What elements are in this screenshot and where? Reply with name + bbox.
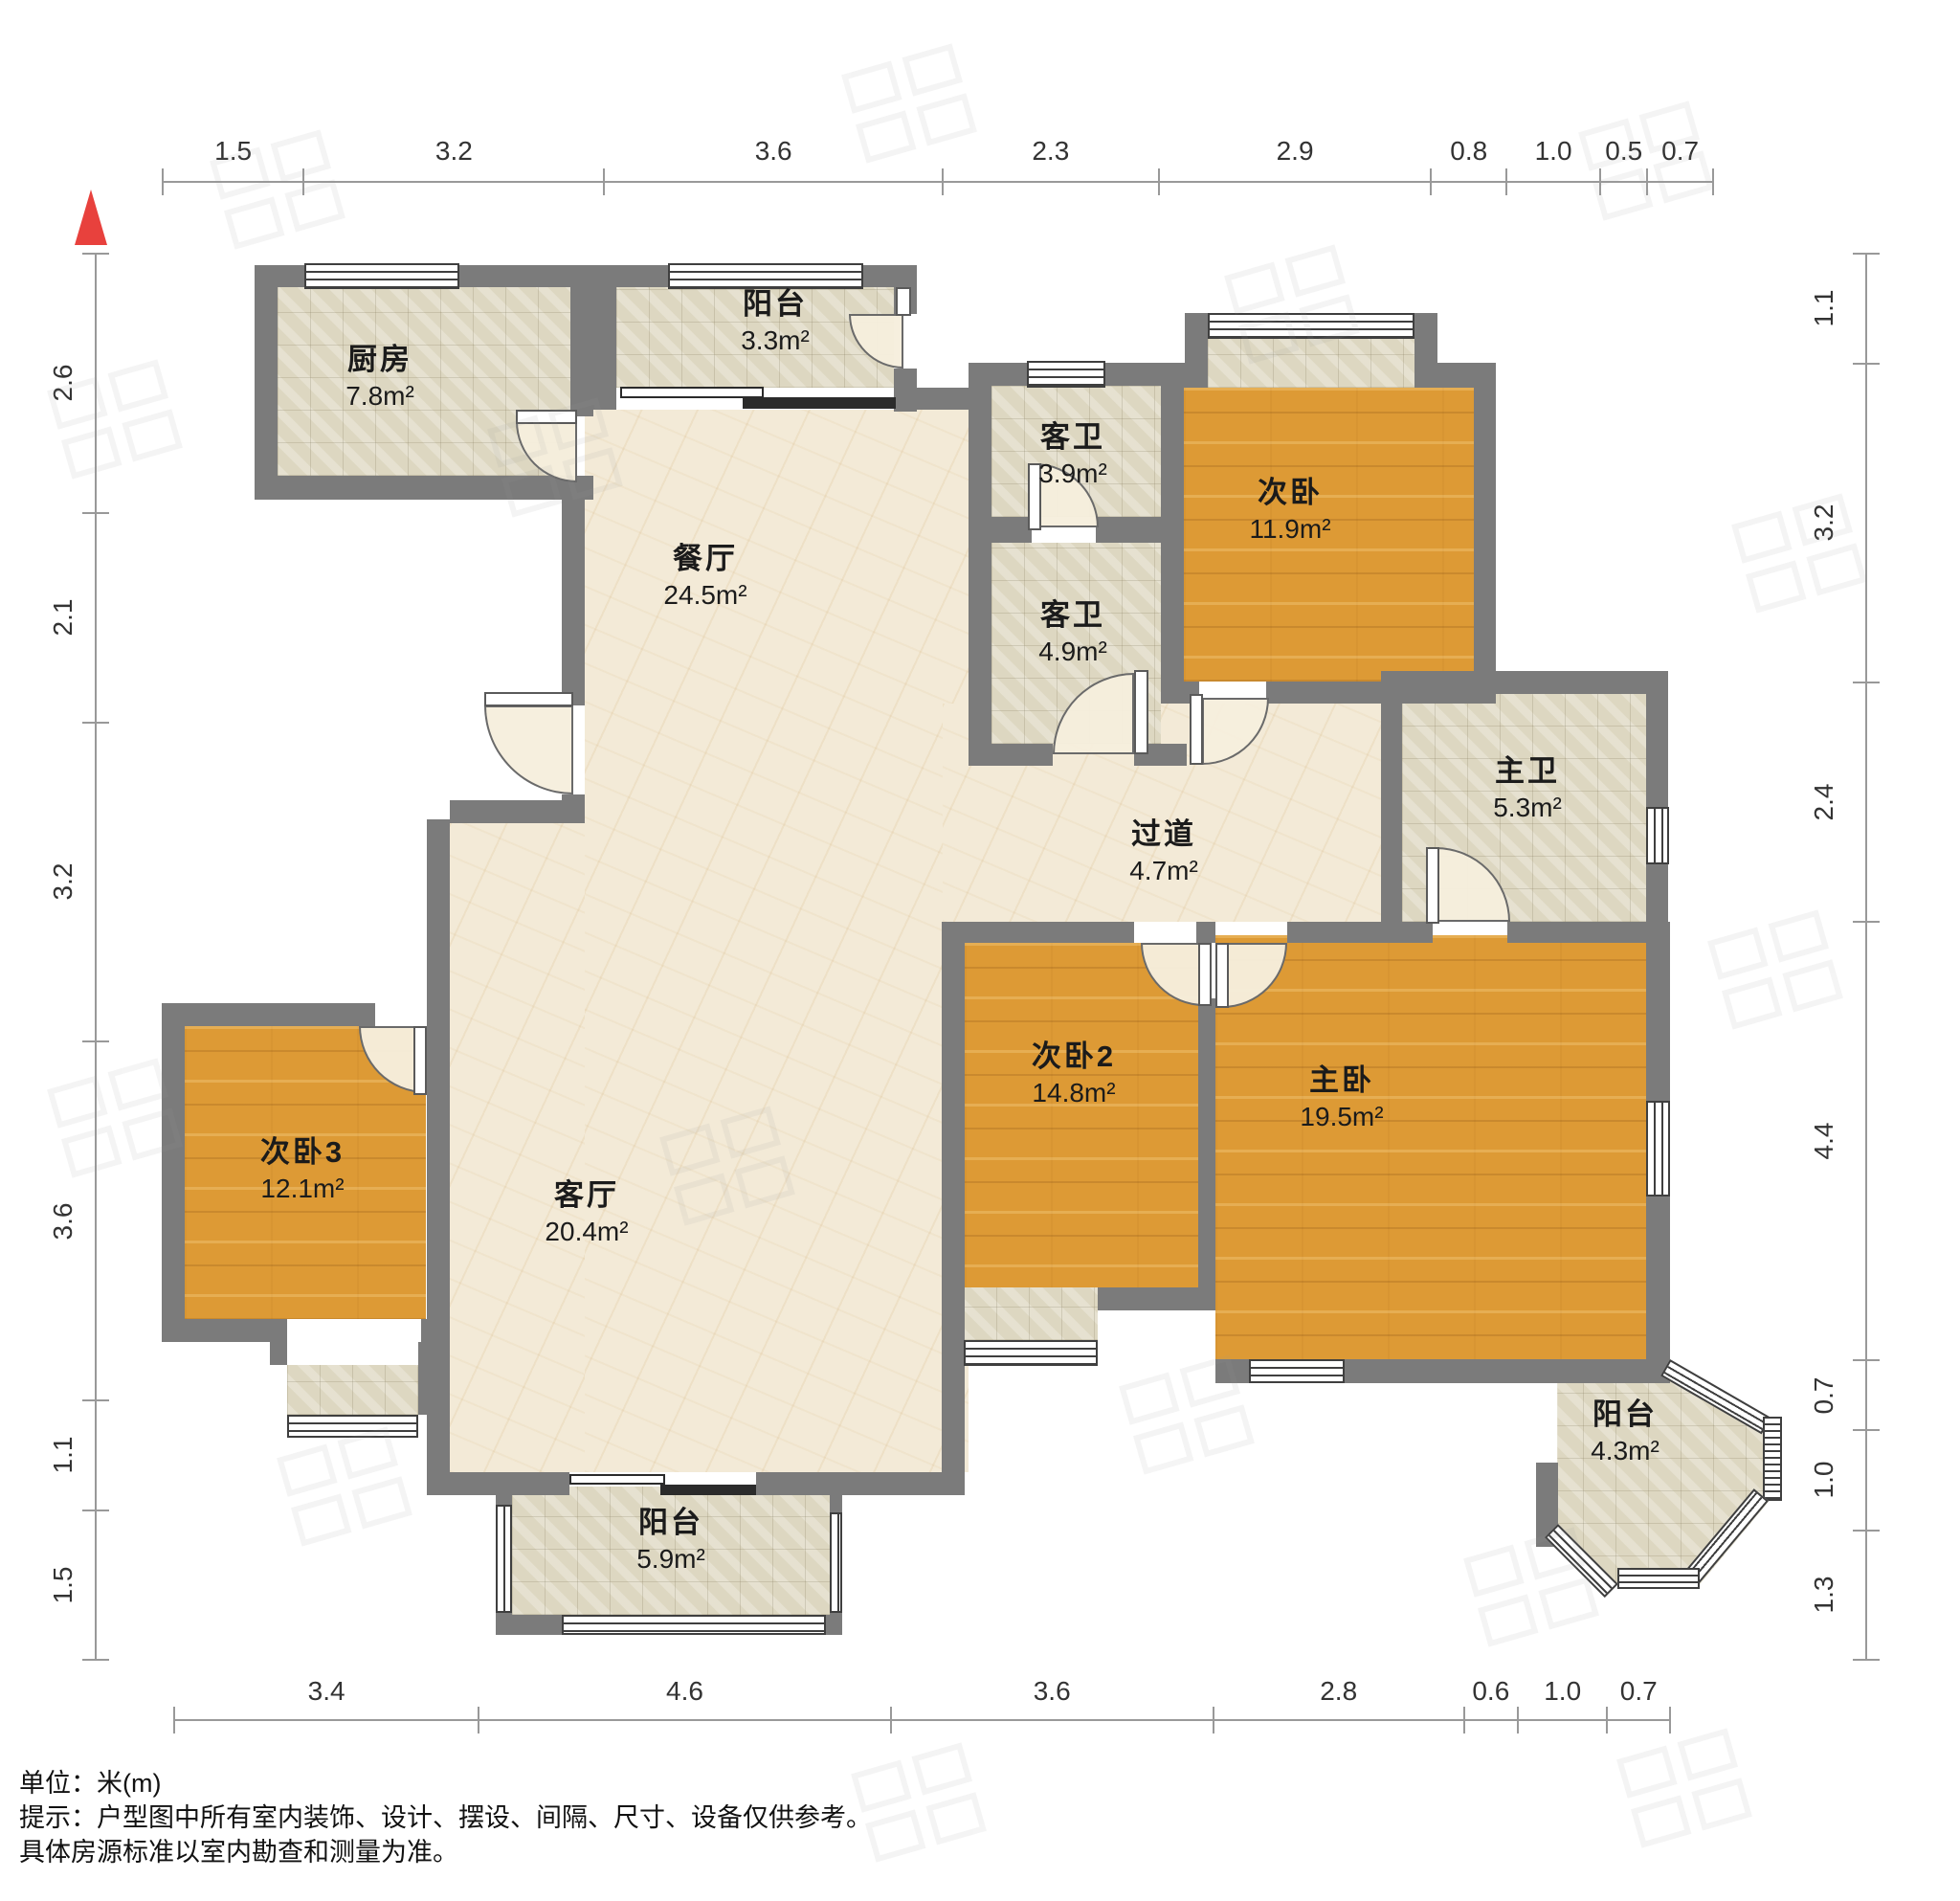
- window: [1763, 1417, 1782, 1501]
- wall: [1646, 671, 1668, 807]
- dim-label-right: 0.7: [1809, 1376, 1839, 1414]
- dim-line-left: [95, 254, 97, 1660]
- dim-tick: [942, 168, 944, 195]
- dim-tick: [1669, 1707, 1671, 1733]
- wall: [1345, 1359, 1589, 1383]
- north-triangle-icon: [75, 190, 107, 245]
- room-name-kitchen: 厨房: [345, 335, 414, 378]
- dim-label-bottom: 3.4: [308, 1676, 345, 1707]
- dim-label-left: 2.1: [48, 599, 78, 637]
- sliding-door: [660, 1485, 756, 1495]
- wall: [830, 1495, 842, 1512]
- wall: [421, 1319, 450, 1342]
- wall: [255, 476, 593, 500]
- room-floor: [450, 823, 585, 1472]
- dim-tick: [1853, 921, 1880, 923]
- wall: [496, 1615, 562, 1635]
- dim-label-top: 0.5: [1605, 136, 1642, 167]
- room-label-bedroom-second: 次卧11.9m²: [1249, 468, 1330, 545]
- dim-label-left: 3.6: [48, 1202, 78, 1240]
- dim-label-right: 4.4: [1809, 1123, 1839, 1160]
- door-leaf: [413, 1026, 427, 1095]
- room-area-guest-bath-1: 3.9m²: [1038, 458, 1107, 489]
- room-label-bedroom-2: 次卧214.8m²: [1032, 1032, 1116, 1108]
- room-label-master-bath: 主卫5.3m²: [1493, 747, 1562, 823]
- dim-tick: [1853, 363, 1880, 365]
- room-label-bedroom-3: 次卧312.1m²: [260, 1128, 345, 1204]
- dim-tick: [1712, 168, 1714, 195]
- room-area-bedroom-3: 12.1m²: [260, 1174, 345, 1204]
- dim-line-bottom: [174, 1719, 1670, 1721]
- room-area-living: 20.4m²: [545, 1217, 628, 1247]
- tip-line-2: 具体房源标准以室内勘查和测量为准。: [19, 1835, 872, 1869]
- room-floor: [287, 1365, 418, 1415]
- wall: [1198, 998, 1215, 1310]
- watermark-logo: [277, 1426, 412, 1546]
- wall: [255, 265, 278, 500]
- door-leaf: [484, 692, 573, 706]
- dim-label-top: 3.2: [435, 136, 473, 167]
- unit-note: 单位：米(m): [19, 1766, 872, 1800]
- wall: [1098, 1287, 1215, 1310]
- dim-tick: [1853, 1530, 1880, 1532]
- window: [830, 1512, 842, 1613]
- room-area-master-bedroom: 19.5m²: [1300, 1102, 1383, 1132]
- dim-label-left: 1.1: [48, 1437, 78, 1474]
- room-label-guest-bath-2: 客卫4.9m²: [1038, 591, 1107, 667]
- dim-line-top: [163, 181, 1713, 183]
- dim-tick: [603, 168, 605, 195]
- dim-tick: [173, 1707, 175, 1733]
- sliding-door: [569, 1474, 665, 1485]
- window: [562, 1615, 826, 1635]
- dim-tick: [1213, 1707, 1214, 1733]
- window: [496, 1505, 512, 1613]
- wall: [1161, 363, 1184, 704]
- wall: [496, 1487, 512, 1505]
- wall: [1646, 922, 1670, 1101]
- room-area-kitchen: 7.8m²: [345, 381, 414, 412]
- dim-tick: [162, 168, 164, 195]
- dim-tick: [82, 722, 109, 724]
- dim-tick: [1853, 253, 1880, 255]
- window: [1027, 361, 1105, 388]
- dim-line-right: [1865, 254, 1867, 1660]
- room-name-balcony-south: 阳台: [636, 1498, 705, 1541]
- room-area-dining: 24.5m²: [663, 580, 746, 611]
- window: [964, 1340, 1098, 1366]
- dim-label-top: 2.9: [1277, 136, 1314, 167]
- room-area-balcony-east: 4.3m²: [1591, 1436, 1659, 1466]
- wall: [418, 1342, 435, 1415]
- wall: [1096, 517, 1161, 543]
- room-label-balcony-south: 阳台5.9m²: [636, 1498, 705, 1575]
- dim-tick: [1853, 682, 1880, 683]
- room-area-balcony-north: 3.3m²: [741, 325, 810, 356]
- wall: [1381, 671, 1668, 694]
- sliding-door: [743, 397, 896, 409]
- room-area-bedroom-2: 14.8m²: [1032, 1078, 1116, 1108]
- dim-tick: [1853, 1429, 1880, 1431]
- room-name-bedroom-second: 次卧: [1249, 468, 1330, 511]
- room-name-balcony-north: 阳台: [741, 280, 810, 323]
- wall: [942, 922, 1134, 943]
- wall: [427, 819, 450, 1342]
- room-floor: [1208, 338, 1414, 388]
- dim-label-bottom: 1.0: [1544, 1676, 1581, 1707]
- wall: [969, 744, 1053, 766]
- dim-tick: [1505, 168, 1507, 195]
- dim-label-bottom: 4.6: [666, 1676, 703, 1707]
- wall: [1381, 694, 1402, 943]
- room-label-living: 客厅20.4m²: [545, 1171, 628, 1247]
- door-leaf: [1134, 670, 1148, 754]
- dim-label-top: 2.3: [1032, 136, 1069, 167]
- room-area-balcony-south: 5.9m²: [636, 1544, 705, 1575]
- dim-tick: [82, 1659, 109, 1661]
- wall: [593, 287, 616, 410]
- room-label-master-bedroom: 主卧19.5m²: [1300, 1056, 1383, 1132]
- wall: [756, 1472, 842, 1495]
- room-label-dining: 餐厅24.5m²: [663, 534, 746, 611]
- dim-label-top: 0.8: [1450, 136, 1487, 167]
- wall: [450, 800, 585, 823]
- wall: [1414, 313, 1437, 388]
- dim-tick: [478, 1707, 479, 1733]
- room-name-guest-bath-2: 客卫: [1038, 591, 1107, 634]
- dim-tick: [1646, 168, 1648, 195]
- dim-tick: [1853, 1359, 1880, 1361]
- room-label-hallway: 过道4.7m²: [1129, 810, 1198, 886]
- dim-label-bottom: 0.6: [1472, 1676, 1509, 1707]
- watermark-logo: [1616, 1728, 1752, 1847]
- wall: [1215, 1359, 1249, 1383]
- room-floor: [1215, 935, 1646, 1359]
- wall: [969, 517, 1032, 543]
- wall: [450, 1472, 496, 1495]
- dim-tick: [1463, 1707, 1465, 1733]
- dim-label-right: 1.3: [1809, 1577, 1839, 1614]
- wall: [1287, 922, 1433, 943]
- dim-tick: [1430, 168, 1432, 195]
- room-name-hallway: 过道: [1129, 810, 1198, 853]
- dim-label-right: 3.2: [1809, 504, 1839, 542]
- dim-label-top: 0.7: [1661, 136, 1699, 167]
- door-leaf: [1190, 694, 1203, 765]
- wall: [1185, 313, 1208, 388]
- wall: [429, 1003, 450, 1026]
- tip-line-1: 提示：户型图中所有室内装饰、设计、摆设、间隔、尺寸、设备仅供参考。: [19, 1800, 872, 1835]
- room-label-guest-bath-1: 客卫3.9m²: [1038, 413, 1107, 489]
- door-leaf: [896, 287, 911, 316]
- wall: [1196, 922, 1215, 943]
- room-name-balcony-east: 阳台: [1591, 1390, 1659, 1433]
- window: [1646, 807, 1669, 864]
- wall: [1589, 1359, 1670, 1383]
- room-floor: [585, 410, 969, 1472]
- dim-label-right: 2.4: [1809, 784, 1839, 821]
- dim-tick: [1158, 168, 1160, 195]
- wall: [162, 1003, 375, 1026]
- room-name-master-bedroom: 主卧: [1300, 1056, 1383, 1099]
- room-name-living: 客厅: [545, 1171, 628, 1214]
- door-swing-arc: [484, 705, 573, 794]
- dim-tick: [82, 1510, 109, 1511]
- dim-label-left: 1.5: [48, 1566, 78, 1603]
- wall: [1474, 363, 1496, 682]
- room-area-master-bath: 5.3m²: [1493, 793, 1562, 823]
- watermark-logo: [1731, 493, 1867, 613]
- wall: [570, 265, 593, 416]
- wall: [947, 1287, 964, 1366]
- dim-label-top: 1.0: [1535, 136, 1572, 167]
- wall: [162, 1003, 185, 1342]
- dim-label-bottom: 3.6: [1034, 1676, 1071, 1707]
- dim-label-top: 3.6: [755, 136, 792, 167]
- window: [287, 1415, 418, 1438]
- window: [304, 263, 459, 289]
- room-area-bedroom-second: 11.9m²: [1249, 514, 1330, 545]
- footer-notes: 单位：米(m) 提示：户型图中所有室内装饰、设计、摆设、间隔、尺寸、设备仅供参考…: [19, 1766, 872, 1869]
- room-label-kitchen: 厨房7.8m²: [345, 335, 414, 412]
- window: [1646, 1101, 1670, 1197]
- room-label-balcony-east: 阳台4.3m²: [1591, 1390, 1659, 1466]
- door-leaf: [516, 410, 577, 424]
- room-floor: [964, 1287, 1098, 1340]
- dim-label-left: 3.2: [48, 863, 78, 901]
- wall: [162, 1319, 287, 1342]
- dim-tick: [1606, 1707, 1608, 1733]
- dim-label-top: 1.5: [214, 136, 252, 167]
- room-name-guest-bath-1: 客卫: [1038, 413, 1107, 456]
- wall: [562, 500, 585, 705]
- wall: [1646, 1197, 1670, 1359]
- room-label-balcony-north: 阳台3.3m²: [741, 280, 810, 356]
- dim-tick: [1517, 1707, 1519, 1733]
- dim-tick: [890, 1707, 892, 1733]
- door-leaf: [1215, 943, 1229, 1008]
- door-leaf: [1198, 943, 1212, 1006]
- window: [1249, 1359, 1345, 1383]
- wall: [942, 943, 965, 1495]
- door-leaf: [1426, 847, 1439, 924]
- room-name-dining: 餐厅: [663, 534, 746, 577]
- dim-tick: [1599, 168, 1601, 195]
- dim-label-bottom: 2.8: [1320, 1676, 1357, 1707]
- dim-tick: [82, 253, 109, 255]
- room-floor: [965, 943, 1198, 1287]
- dim-label-right: 1.0: [1809, 1462, 1839, 1499]
- window: [1617, 1568, 1700, 1589]
- dim-label-right: 1.1: [1809, 290, 1839, 327]
- wall: [1646, 864, 1668, 922]
- watermark-logo: [1707, 909, 1843, 1029]
- window: [1208, 313, 1414, 339]
- wall: [826, 1615, 842, 1635]
- watermark-logo: [841, 43, 977, 163]
- dim-label-left: 2.6: [48, 365, 78, 402]
- floorplan-canvas: 厨房7.8m²阳台3.3m²餐厅24.5m²客卫3.9m²客卫4.9m²次卧11…: [0, 0, 1960, 1901]
- room-name-master-bath: 主卫: [1493, 747, 1562, 790]
- dim-tick: [82, 512, 109, 514]
- room-area-guest-bath-2: 4.9m²: [1038, 637, 1107, 667]
- room-area-hallway: 4.7m²: [1129, 856, 1198, 886]
- wall: [270, 1342, 287, 1365]
- dim-tick: [302, 168, 304, 195]
- dim-tick: [82, 1040, 109, 1042]
- room-name-bedroom-3: 次卧3: [260, 1128, 345, 1171]
- dim-label-bottom: 0.7: [1620, 1676, 1658, 1707]
- dim-tick: [82, 1399, 109, 1401]
- room-name-bedroom-2: 次卧2: [1032, 1032, 1116, 1075]
- wall: [969, 363, 991, 766]
- dim-tick: [1853, 1659, 1880, 1661]
